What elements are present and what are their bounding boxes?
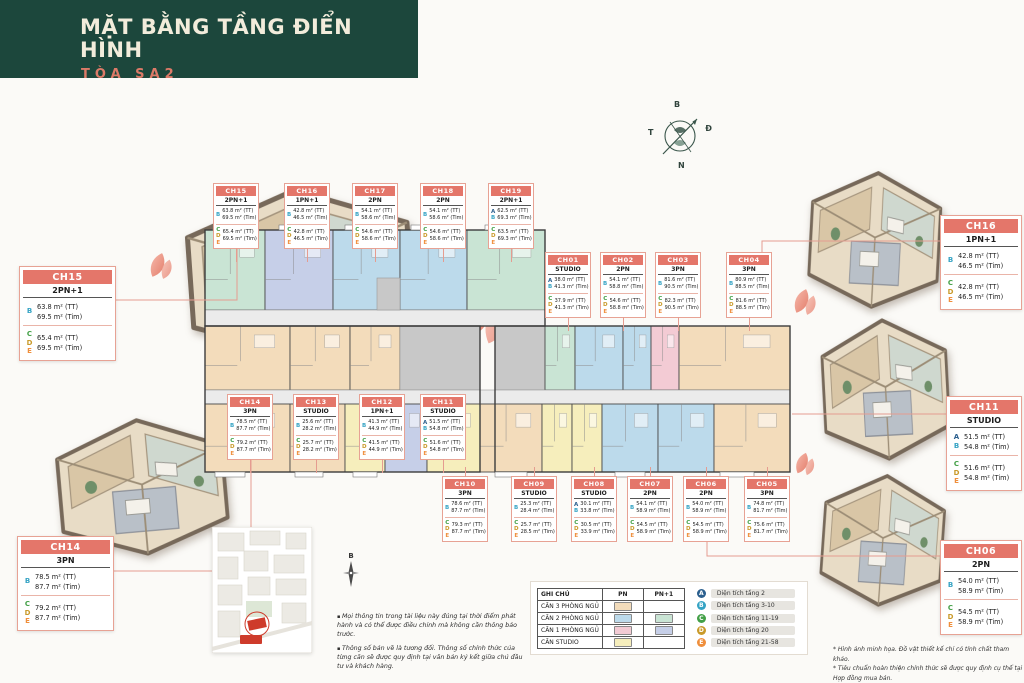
area-values: 80.9 m² (TT)88.5 m² (Tim) [735,277,769,291]
unit-id: CH11 [423,397,463,407]
area-gross: 58.8 m² (Tim) [609,284,643,291]
area-values: 51.5 m² (TT)54.8 m² (Tim) [429,419,463,433]
floor-letter: E [296,451,301,457]
area-gross: 87.7 m² (Tim) [452,529,486,536]
area-clear: 42.8 m² (TT) [958,282,1017,292]
floor-plan [195,222,800,487]
floor-letter-column: CDE [951,460,962,486]
unit-label-ch12: CH121PN+1B41.3 m² (TT)44.9 m² (Tim)CDE41… [359,394,405,460]
unit-id: CH15 [23,270,112,284]
area-values: 79.3 m² (TT)87.7 m² (Tim) [452,522,486,536]
connector-line [749,317,750,331]
area-clear: 25.7 m² (TT) [303,440,337,447]
apartment-unit [290,326,350,390]
legend-row: CĂN 2 PHÒNG NGỦ [538,613,685,625]
floor-letter: B [951,442,962,451]
area-values: 54.1 m² (TT)58.6 m² (Tim) [429,208,463,222]
area-clear: 42.8 m² (TT) [294,229,328,236]
area-group: CDE79.2 m² (TT)87.7 m² (Tim) [230,435,270,459]
unit-label-ch13: CH13STUDIOB25.6 m² (TT)28.2 m² (Tim)CDE2… [293,394,339,460]
floor-letter-column: CDE [230,438,235,457]
area-clear: 51.5 m² (TT) [964,432,1017,442]
compass-north-label: B [674,100,680,109]
unit-type: 3PN [747,489,787,499]
area-clear: 25.7 m² (TT) [521,522,555,529]
area-values: 54.1 m² (TT)58.6 m² (Tim) [361,208,395,222]
connector-line [375,248,376,262]
area-gross: 58.9 m² (Tim) [692,508,726,515]
floor-letter: E [630,533,635,539]
apartment-unit [658,404,714,472]
area-group: AB30.1 m² (TT)33.8 m² (Tim) [572,499,616,517]
floor-letter: E [24,347,35,356]
note-item: Thông số bản vẽ là tương đối. Thông số c… [337,644,527,672]
unit-id: CH02 [603,255,643,265]
floor-letter-column: CDE [24,330,35,356]
floor-letter: B [24,307,35,316]
area-clear: 30.5 m² (TT) [581,522,615,529]
area-group: B63.8 m² (TT)69.5 m² (Tim) [20,298,115,325]
unit-id: CH01 [548,255,588,265]
area-values: 78.6 m² (TT)87.7 m² (Tim) [451,501,485,515]
floor-letter-column: B [747,505,751,511]
area-gross: 58.9 m² (Tim) [637,529,671,536]
apartment-unit [572,404,602,472]
area-clear: 54.1 m² (TT) [636,501,670,508]
unit-label-ch11: CH11STUDIOAB51.5 m² (TT)54.8 m² (Tim)CDE… [420,394,466,460]
area-values: 54.6 m² (TT)58.6 m² (Tim) [430,229,464,243]
area-values: 81.6 m² (TT)90.5 m² (Tim) [664,277,698,291]
unit-id: CH08 [574,479,614,489]
area-values: 42.8 m² (TT)46.5 m² (Tim) [958,251,1017,271]
connector-line [767,467,768,477]
unit-type: 2PN+1 [491,196,531,206]
area-clear: 81.6 m² (TT) [664,277,698,284]
floor-letter-column: CDE [296,438,301,457]
floor-letter: C [22,600,33,609]
unit-id: CH12 [362,397,402,407]
floor-letter-column: B [24,307,35,316]
legend-swatch-pn [614,626,632,635]
unit-id: CH17 [355,186,395,196]
area-gross: 54.8 m² (Tim) [429,426,463,433]
area-clear: 54.5 m² (TT) [637,522,671,529]
unit-id: CH06 [686,479,726,489]
floor-letter-column: CDE [574,520,579,539]
area-values: 63.5 m² (TT)69.3 m² (Tim) [498,229,532,243]
area-clear: 78.6 m² (TT) [451,501,485,508]
unit-type: 1PN+1 [362,407,402,417]
floor-letter: B [548,284,552,290]
area-group: CDE82.3 m² (TT)90.5 m² (Tim) [658,293,698,317]
floor-letter: E [423,451,428,457]
unit-type: STUDIO [296,407,336,417]
floor-letter: B [355,212,359,218]
floor-level-badge: B [697,601,706,610]
connector-line [307,248,308,262]
unit-type: 2PN [630,489,670,499]
area-values: 41.3 m² (TT)44.9 m² (Tim) [368,419,402,433]
area-group: CDE54.5 m² (TT)58.9 m² (Tim) [686,517,726,541]
floor-letter-column: CDE [945,604,956,630]
connector-line [706,467,707,477]
area-values: 25.7 m² (TT)28.2 m² (Tim) [303,440,337,454]
area-group: B78.6 m² (TT)87.7 m² (Tim) [443,499,487,517]
floor-letter-column: B [514,505,518,511]
area-clear: 54.1 m² (TT) [609,277,643,284]
unit-label-ch07: CH072PNB54.1 m² (TT)58.9 m² (Tim)CDE54.5… [627,476,673,542]
area-gross: 54.8 m² (Tim) [430,447,464,454]
area-gross: 28.4 m² (Tim) [520,508,554,515]
legend-swatch-pn [614,638,632,647]
area-clear: 81.6 m² (TT) [736,298,770,305]
legend-row-label: CĂN 2 PHÒNG NGỦ [538,613,603,625]
legend-col-note: GHI CHÚ [538,589,603,601]
floor-letter: E [747,533,752,539]
area-values: 51.6 m² (TT)54.8 m² (Tim) [430,440,464,454]
unit-id: CH16 [287,186,327,196]
floor-letter-column: CDE [514,520,519,539]
floor-letter-column: CDE [630,520,635,539]
unit-label-ch11: CH11STUDIOAB51.5 m² (TT)54.8 m² (Tim)CDE… [946,396,1022,491]
floor-level-legend: ADiện tích tầng 2BDiện tích tầng 3-10CDi… [697,588,795,648]
area-clear: 54.6 m² (TT) [362,229,396,236]
header-banner: MẶT BẰNG TẦNG ĐIỂN HÌNH TÒA SA2 [0,0,418,78]
floor-letter: E [945,296,956,305]
unit-type: 3PN [230,407,270,417]
area-gross: 58.6 m² (Tim) [361,215,395,222]
area-group: CDE54.5 m² (TT)58.9 m² (Tim) [630,517,670,541]
floor-letter: B [658,281,662,287]
floor-letter: E [216,240,221,246]
floor-letter-column: CDE [445,520,450,539]
floor-letter-column: B [630,505,634,511]
floor-letter: B [747,505,751,511]
area-values: 51.6 m² (TT)54.8 m² (Tim) [964,463,1017,483]
corridor [205,310,545,326]
area-group: B54.1 m² (TT)58.6 m² (Tim) [421,206,465,224]
area-gross: 58.9 m² (Tim) [636,508,670,515]
floor-letter-column: CDE [423,227,428,246]
apartment-unit [623,326,651,390]
area-gross: 54.8 m² (Tim) [964,473,1017,483]
floor-letter: E [491,240,496,246]
area-group: CDE75.6 m² (TT)81.7 m² (Tim) [747,517,787,541]
area-group: CDE79.3 m² (TT)87.7 m² (Tim) [445,517,485,541]
floor-letter-column: CDE [729,296,734,315]
area-group: CDE30.5 m² (TT)33.9 m² (Tim) [574,517,614,541]
floor-letter-column: B [603,281,607,287]
area-gross: 58.6 m² (Tim) [362,236,396,243]
unit-type: 3PN [658,265,698,275]
apartment-unit [350,326,400,390]
floor-letter-column: CDE [22,600,33,626]
floor-letter-column: CDE [747,520,752,539]
area-gross: 81.7 m² (Tim) [753,508,787,515]
floor-letter-column: AB [574,502,578,515]
area-values: 38.0 m² (TT)41.3 m² (Tim) [554,277,588,291]
floor-level-badge: E [697,638,706,647]
floor-letter-column: CDE [287,227,292,246]
unit-type: STUDIO [423,407,463,417]
floor-letter-column: AB [951,433,962,451]
connector-line [443,248,444,262]
floor-letter: B [603,281,607,287]
area-gross: 87.7 m² (Tim) [35,613,109,623]
area-group: B54.1 m² (TT)58.8 m² (Tim) [601,275,645,293]
legend-card: GHI CHÚ PN PN+1 CĂN 3 PHÒNG NGỦCĂN 2 PHÒ… [530,581,808,655]
floor-letter-column: B [945,256,956,265]
area-clear: 63.8 m² (TT) [222,208,256,215]
floor-letter-column: AB [548,278,552,291]
area-clear: 25.6 m² (TT) [302,419,336,426]
floor-letter: B [22,577,33,586]
connector-line [382,459,383,473]
area-gross: 87.7 m² (Tim) [35,582,109,592]
area-gross: 28.2 m² (Tim) [302,426,336,433]
render-3d-ch06 [813,464,952,613]
unit-label-ch05: CH053PNB74.8 m² (TT)81.7 m² (Tim)CDE75.6… [744,476,790,542]
floor-level-label: Diện tích tầng 2 [711,589,795,598]
floor-level-row: EDiện tích tầng 21-58 [697,638,795,647]
floor-letter: B [362,423,366,429]
area-clear: 54.1 m² (TT) [429,208,463,215]
area-group: AB62.5 m² (TT)69.3 m² (Tim) [489,206,533,224]
legend-swatch-pn-cell [602,613,643,625]
floor-letter-column: CDE [423,438,428,457]
service-core [400,326,480,390]
floor-level-label: Diện tích tầng 11-19 [711,614,795,623]
area-values: 54.5 m² (TT)58.9 m² (Tim) [958,607,1017,627]
footnotes: * Hình ảnh minh họa. Đồ vật thiết kế chỉ… [833,645,1023,683]
unit-type: 2PN [944,558,1018,572]
mini-compass-north-label: B [340,552,362,560]
area-group: B78.5 m² (TT)87.7 m² (Tim) [228,417,272,435]
area-gross: 69.5 m² (Tim) [222,215,256,222]
connector-line [534,467,535,477]
floor-letter: B [423,212,427,218]
apartment-unit [602,404,658,472]
area-clear: 30.1 m² (TT) [580,501,614,508]
legend-swatch-pn-cell [602,601,643,613]
location-map [212,527,312,653]
floor-letter: C [945,279,956,288]
unit-type: 3PN [445,489,485,499]
area-group: B41.3 m² (TT)44.9 m² (Tim) [360,417,404,435]
area-clear: 54.0 m² (TT) [692,501,726,508]
area-gross: 58.9 m² (Tim) [958,586,1017,596]
area-values: 62.5 m² (TT)69.3 m² (Tim) [497,208,531,222]
floor-letter-column: B [945,581,956,590]
render-3d-ch16 [801,161,948,313]
compass-icon: B Đ N T [648,100,712,170]
floor-letter: E [230,451,235,457]
page-title: MẶT BẰNG TẦNG ĐIỂN HÌNH [80,16,418,62]
area-gross: 58.8 m² (Tim) [610,305,644,312]
service-core [495,326,545,390]
area-group: B78.5 m² (TT)87.7 m² (Tim) [18,568,113,595]
note-item: Mọi thông tin trong tài liệu này đúng tạ… [337,612,527,640]
area-values: 81.6 m² (TT)88.5 m² (Tim) [736,298,770,312]
area-clear: 42.8 m² (TT) [958,251,1017,261]
area-group: CDE54.5 m² (TT)58.9 m² (Tim) [944,599,1018,633]
floor-letter-column: AB [491,209,495,222]
unit-label-ch10: CH103PNB78.6 m² (TT)87.7 m² (Tim)CDE79.3… [442,476,488,542]
unit-id: CH10 [445,479,485,489]
area-group: CDE65.4 m² (TT)69.5 m² (Tim) [216,224,256,248]
area-values: 54.1 m² (TT)58.9 m² (Tim) [636,501,670,515]
legend-swatch-pn1-cell [643,625,684,637]
floor-letter-column: B [22,577,33,586]
connector-line [650,467,651,477]
apartment-unit [651,326,679,390]
unit-type: 2PN+1 [216,196,256,206]
render-3d-ch11 [814,309,957,466]
apartment-unit [575,326,623,390]
area-values: 54.6 m² (TT)58.6 m² (Tim) [362,229,396,243]
area-gross: 58.9 m² (Tim) [693,529,727,536]
area-group: CDE42.8 m² (TT)46.5 m² (Tim) [287,224,327,248]
area-values: 63.8 m² (TT)69.5 m² (Tim) [37,302,111,322]
area-clear: 65.4 m² (TT) [223,229,257,236]
unit-id: CH11 [950,400,1018,414]
floor-letter: B [574,508,578,514]
unit-label-ch19: CH192PN+1AB62.5 m² (TT)69.3 m² (Tim)CDE6… [488,183,534,249]
connector-line [511,248,512,262]
area-clear: 38.0 m² (TT) [554,277,588,284]
unit-label-ch18: CH182PNB54.1 m² (TT)58.6 m² (Tim)CDE54.6… [420,183,466,249]
unit-id: CH13 [296,397,336,407]
area-group: B25.6 m² (TT)28.2 m² (Tim) [294,417,338,435]
area-clear: 65.4 m² (TT) [37,333,111,343]
unit-label-ch03: CH033PNB81.6 m² (TT)90.5 m² (Tim)CDE82.3… [655,252,701,318]
unit-id: CH14 [230,397,270,407]
area-clear: 82.3 m² (TT) [665,298,699,305]
connector-line [678,317,679,331]
area-values: 51.5 m² (TT)54.8 m² (Tim) [964,432,1017,452]
area-values: 37.9 m² (TT)41.3 m² (Tim) [555,298,589,312]
area-values: 65.4 m² (TT)69.5 m² (Tim) [37,333,111,353]
apartment-unit [714,404,790,472]
area-values: 54.0 m² (TT)58.9 m² (Tim) [692,501,726,515]
area-values: 54.6 m² (TT)58.8 m² (Tim) [610,298,644,312]
unit-id: CH18 [423,186,463,196]
floor-letter-column: B [362,423,366,429]
area-gross: 46.5 m² (Tim) [958,261,1017,271]
area-values: 30.5 m² (TT)33.9 m² (Tim) [581,522,615,536]
area-gross: 69.3 m² (Tim) [498,236,532,243]
floor-letter-column: B [445,505,449,511]
floor-letter: E [951,477,962,486]
floor-letter: E [686,533,691,539]
area-values: 42.8 m² (TT)46.5 m² (Tim) [293,208,327,222]
floor-letter: B [423,426,427,432]
area-group: B42.8 m² (TT)46.5 m² (Tim) [285,206,329,224]
area-clear: 41.5 m² (TT) [369,440,403,447]
area-clear: 63.8 m² (TT) [37,302,111,312]
floor-level-label: Diện tích tầng 21-58 [711,638,795,647]
floor-letter-column: B [658,281,662,287]
floor-level-row: CDiện tích tầng 11-19 [697,614,795,623]
area-gross: 44.9 m² (Tim) [368,426,402,433]
area-clear: 62.5 m² (TT) [497,208,531,215]
floor-level-row: ADiện tích tầng 2 [697,589,795,598]
area-group: B25.3 m² (TT)28.4 m² (Tim) [512,499,556,517]
area-gross: 46.5 m² (Tim) [293,215,327,222]
legend-swatch-pn1-cell [643,613,684,625]
area-clear: 79.3 m² (TT) [452,522,486,529]
unit-label-ch14: CH143PNB78.5 m² (TT)87.7 m² (Tim)CDE79.2… [17,536,114,631]
area-group: CDE54.6 m² (TT)58.6 m² (Tim) [355,224,395,248]
apartment-unit [679,326,790,390]
area-values: 25.7 m² (TT)28.5 m² (Tim) [521,522,555,536]
unit-type: 2PN [603,265,643,275]
unit-label-ch01: CH01STUDIOAB38.0 m² (TT)41.3 m² (Tim)CDE… [545,252,591,318]
floor-level-label: Diện tích tầng 20 [711,626,795,635]
floor-letter: C [24,330,35,339]
apartment-unit [205,326,290,390]
legend-swatch-pn1-cell [643,637,684,649]
unit-label-ch15: CH152PN+1B63.8 m² (TT)69.5 m² (Tim)CDE65… [19,266,116,361]
page-subtitle: TÒA SA2 [81,67,418,82]
floor-letter: B [945,256,956,265]
area-gross: 33.9 m² (Tim) [581,529,615,536]
area-gross: 87.7 m² (Tim) [237,447,271,454]
unit-id: CH14 [21,540,110,554]
compass-west-label: T [648,128,653,137]
legend-row-label: CĂN STUDIO [538,637,603,649]
area-values: 82.3 m² (TT)90.5 m² (Tim) [665,298,699,312]
floor-letter-column: B [287,212,291,218]
area-group: B74.8 m² (TT)81.7 m² (Tim) [745,499,789,517]
legend-row: CĂN 3 PHÒNG NGỦ [538,601,685,613]
unit-label-ch16: CH161PN+1B42.8 m² (TT)46.5 m² (Tim)CDE42… [284,183,330,249]
area-values: 65.4 m² (TT)69.5 m² (Tim) [223,229,257,243]
area-clear: 63.5 m² (TT) [498,229,532,236]
area-group: CDE65.4 m² (TT)69.5 m² (Tim) [23,325,112,359]
connector-line [623,317,624,331]
notes-left: Mọi thông tin trong tài liệu này đúng tạ… [337,612,527,675]
area-group: CDE37.9 m² (TT)41.3 m² (Tim) [548,293,588,317]
area-values: 25.3 m² (TT)28.4 m² (Tim) [520,501,554,515]
floor-letter: B [445,505,449,511]
area-group: CDE79.2 m² (TT)87.7 m² (Tim) [21,595,110,629]
area-gross: 88.5 m² (Tim) [736,305,770,312]
floor-letter: E [22,617,33,626]
unit-id: CH03 [658,255,698,265]
area-values: 41.5 m² (TT)44.9 m² (Tim) [369,440,403,454]
area-values: 54.5 m² (TT)58.9 m² (Tim) [637,522,671,536]
floor-letter: E [362,451,367,457]
area-group: AB38.0 m² (TT)41.3 m² (Tim) [546,275,590,293]
area-gross: 69.3 m² (Tim) [497,215,531,222]
area-values: 79.2 m² (TT)87.7 m² (Tim) [237,440,271,454]
floor-letter: B [296,423,300,429]
area-group: B54.1 m² (TT)58.6 m² (Tim) [353,206,397,224]
area-clear: 54.0 m² (TT) [958,576,1017,586]
area-gross: 58.9 m² (Tim) [958,617,1017,627]
area-group: B42.8 m² (TT)46.5 m² (Tim) [941,247,1021,274]
area-clear: 25.3 m² (TT) [520,501,554,508]
area-values: 78.5 m² (TT)87.7 m² (Tim) [35,572,109,592]
area-group: CDE63.5 m² (TT)69.3 m² (Tim) [491,224,531,248]
area-group: B81.6 m² (TT)90.5 m² (Tim) [656,275,700,293]
unit-type: 3PN [21,554,110,568]
area-values: 42.8 m² (TT)46.5 m² (Tim) [958,282,1017,302]
floor-letter: B [230,423,234,429]
floor-letter: B [686,505,690,511]
floor-letter-column: B [423,212,427,218]
